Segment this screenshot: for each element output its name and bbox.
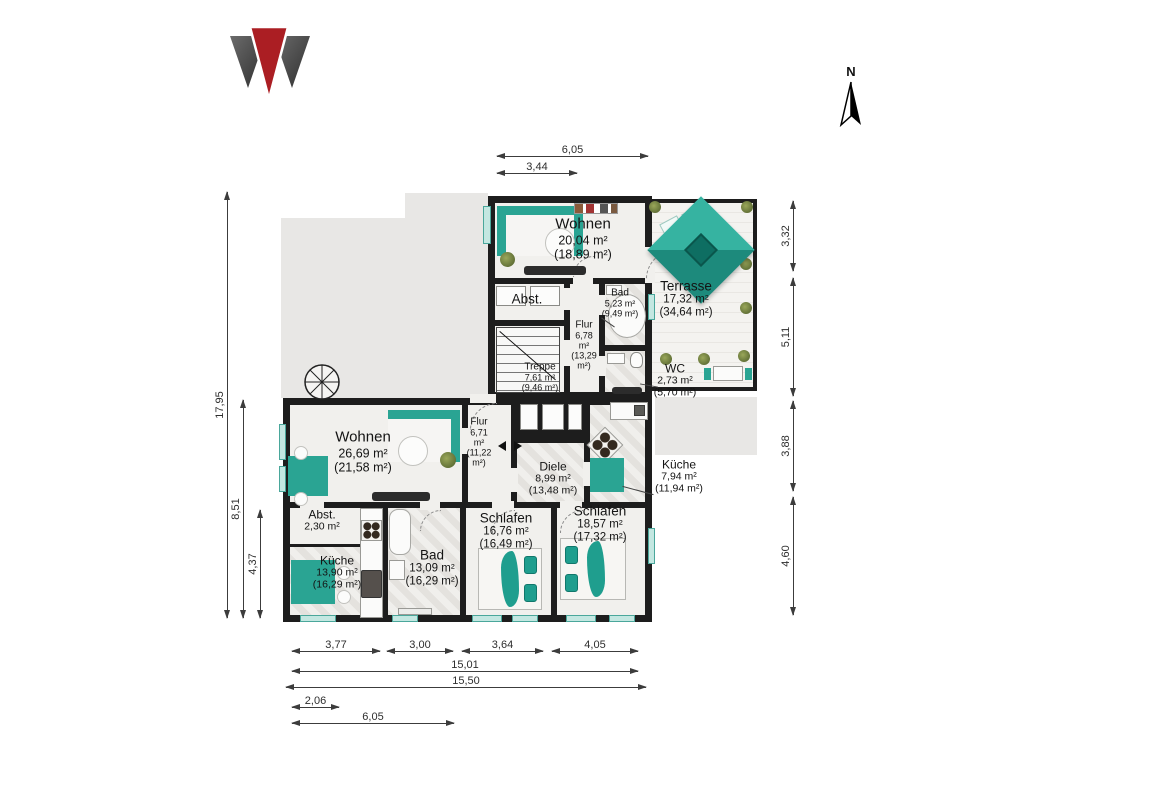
room-label-kueche-small: Küche 7,94 m² (11,94 m²) [655, 459, 703, 496]
room-label-schlafen-1: Schlafen 16,76 m² (16,49 m²) [479, 511, 532, 552]
dim-bottom-total-outer: 15,50 [286, 687, 646, 688]
kueche-lower-fridge [361, 570, 382, 598]
floorplan-canvas: N [0, 0, 1170, 785]
pillow [524, 556, 537, 574]
hall-closet-2 [542, 404, 564, 430]
room-label-kueche-lower: Küche 13,90 m² (16,29 m²) [313, 555, 361, 592]
terrace-plant-5 [738, 350, 750, 362]
dim-bottom-4: 4,05 [552, 651, 638, 652]
dim-bottom-2: 3,00 [387, 651, 453, 652]
terrace-plant-2 [741, 201, 753, 213]
window-wohnen-lower-2 [279, 466, 286, 492]
dim-left-total: 17,95 [227, 192, 228, 618]
room-label-abst-upper: Abst. [512, 291, 543, 306]
dim-bottom-3: 3,64 [462, 651, 543, 652]
room-label-bad-lower: Bad 13,09 m² (16,29 m²) [405, 548, 458, 589]
flur-arrow-right-icon [514, 441, 522, 451]
blanket [587, 541, 605, 597]
dining-table-lower [288, 456, 328, 496]
door-treppe [562, 340, 571, 366]
dim-right-2: 5,11 [793, 278, 794, 396]
hall-closet-1 [520, 404, 538, 430]
building-silhouette-right [655, 397, 757, 455]
room-label-terrasse: Terrasse 17,32 m² (34,64 m²) [659, 279, 712, 320]
door-bad-lower [420, 501, 440, 510]
terrace-plant-6 [698, 353, 710, 365]
room-label-flur-lower: Flur 6,71 m² (11,22 m²) [467, 416, 492, 468]
dim-bottom-total-inner: 15,01 [292, 671, 638, 672]
room-label-bad-upper: Bad 5,23 m² (9,49 m²) [602, 287, 639, 318]
dim-top-partial: 3,44 [497, 173, 577, 174]
kueche-lower-stove [361, 520, 382, 541]
window-schlafen2-a [566, 615, 596, 622]
door-schlafen1 [492, 501, 514, 510]
terrace-chair-1 [704, 368, 711, 380]
shelf-upper [574, 203, 618, 214]
radiator-bad-lower [398, 608, 432, 615]
dining-chair-2 [294, 492, 308, 506]
dim-right-3: 3,88 [793, 401, 794, 491]
dim-right-4: 4,60 [793, 497, 794, 615]
window-schlafen2-right [648, 528, 655, 564]
dim-bottom-1: 3,77 [292, 651, 380, 652]
radiator-wc [612, 387, 642, 394]
room-label-wohnen-upper: Wohnen 20,04 m² (18,89 m²) [554, 217, 612, 262]
plant-wohnen-lower [440, 452, 456, 468]
kueche-lower-chair-2 [337, 590, 351, 604]
hall-closet-3 [568, 404, 582, 430]
sink-wc [607, 353, 625, 364]
building-silhouette-step [405, 193, 488, 218]
north-arrow-icon [836, 79, 866, 129]
door-entry-lower [470, 394, 496, 403]
terrace-plant-4 [740, 302, 752, 314]
toilet-wc [630, 352, 643, 368]
window-schlafen1-b [512, 615, 538, 622]
compass: N [836, 64, 866, 134]
room-label-schlafen-2: Schlafen 18,57 m² (17,32 m²) [573, 504, 626, 545]
window-wohnen-lower-1 [279, 424, 286, 460]
room-label-treppe: Treppe 7,61 m² (9,46 m²) [522, 361, 559, 392]
coffee-table-lower [398, 436, 428, 466]
room-label-wc: WC 2,73 m² (5,70 m²) [654, 363, 697, 400]
plant-wohnen-upper [500, 252, 515, 267]
sink-bad-lower [389, 560, 405, 580]
bed-schlafen-2 [560, 538, 626, 600]
door-wc [597, 356, 606, 376]
room-label-diele: Diele 8,99 m² (13,48 m²) [529, 461, 577, 498]
room-label-flur-upper: Flur 6,78 m² (13,29 m²) [571, 319, 597, 371]
door-abst-upper [562, 288, 571, 310]
spiral-staircase-icon [302, 362, 342, 402]
dining-chair-1 [294, 446, 308, 460]
pillow [565, 574, 578, 592]
window-kueche-lower [300, 615, 336, 622]
window-bad-lower [392, 615, 418, 622]
dim-bottom-left-wing: 6,05 [292, 723, 454, 724]
door-flur-diele [509, 468, 518, 492]
flur-arrow-left-icon [498, 441, 506, 451]
pillow [565, 546, 578, 564]
blanket [501, 551, 519, 607]
dim-bottom-small: 2,06 [292, 707, 339, 708]
window-schlafen2-b [609, 615, 635, 622]
terrace-table [713, 366, 743, 381]
dim-left-mid: 8,51 [243, 400, 244, 618]
window-bad-upper [648, 294, 655, 320]
pillow [524, 584, 537, 602]
kueche-small-sink [634, 405, 645, 416]
room-label-abst-lower: Abst. 2,30 m² [304, 508, 340, 533]
dim-top-total: 6,05 [497, 156, 648, 157]
bed-schlafen-1 [478, 548, 542, 610]
dim-right-1: 3,32 [793, 201, 794, 271]
kueche-small-table [590, 458, 624, 492]
room-label-wohnen-lower: Wohnen 26,69 m² (21,58 m²) [334, 430, 392, 475]
terrace-plant-1 [649, 201, 661, 213]
company-w-logo-icon [228, 24, 312, 104]
terrace-chair-2 [745, 368, 752, 380]
window-schlafen1-a [472, 615, 502, 622]
dim-left-small: 4,37 [260, 510, 261, 618]
sideboard-lower [372, 492, 430, 501]
door-wohnen-upper [573, 276, 593, 285]
sideboard-upper [524, 266, 586, 275]
window-wohnen-upper-left [483, 206, 491, 244]
compass-n-label: N [836, 64, 866, 79]
